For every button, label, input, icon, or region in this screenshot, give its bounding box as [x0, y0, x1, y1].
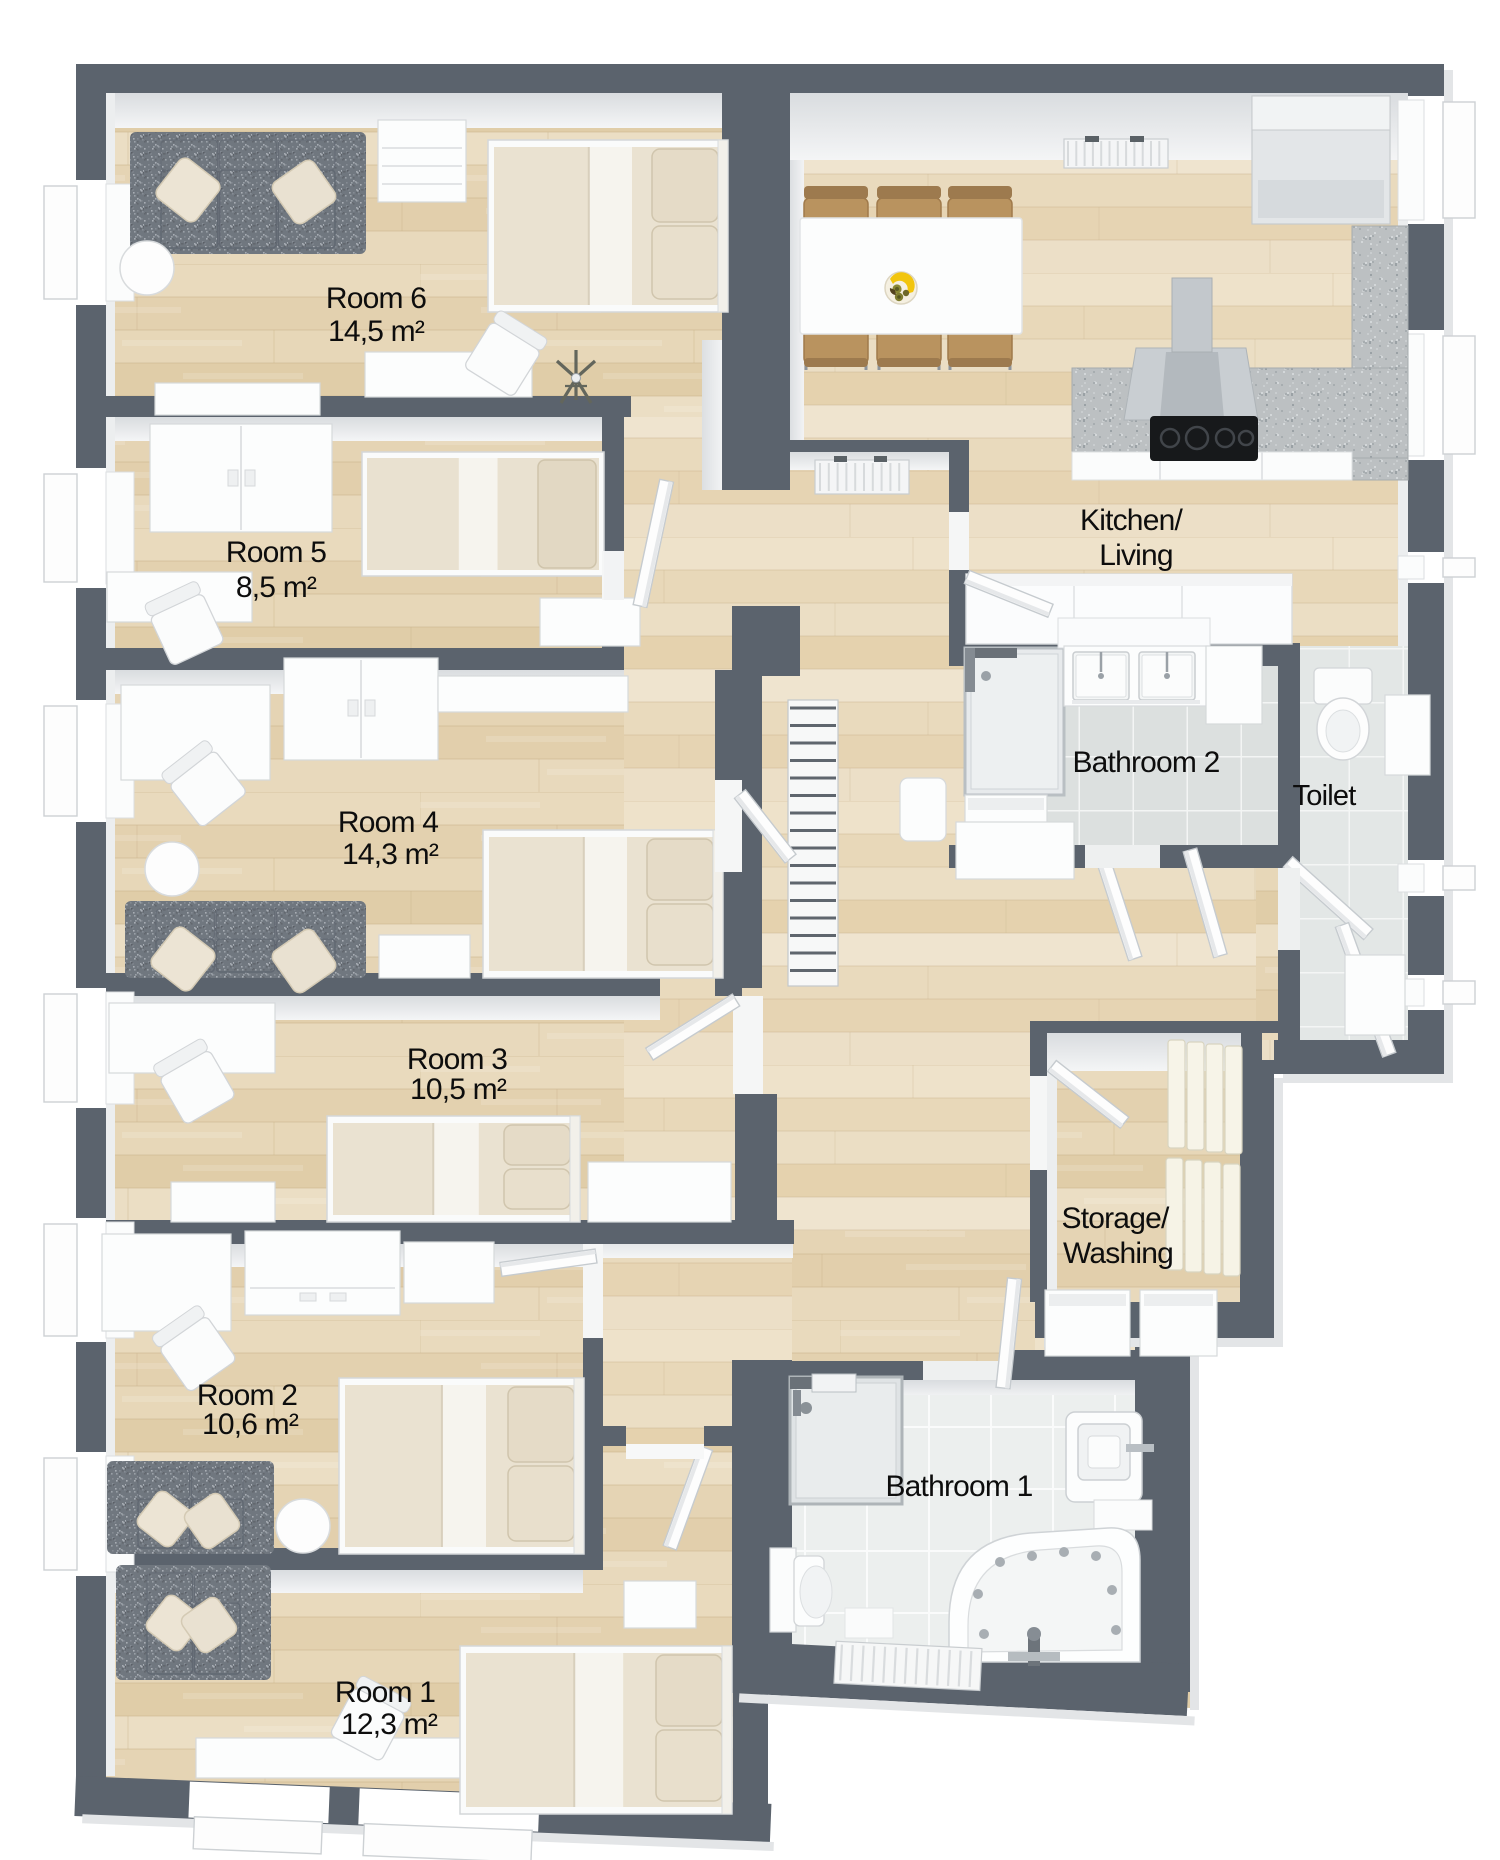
svg-text:Bathroom 2: Bathroom 2 [1072, 746, 1219, 779]
svg-text:12,3 m²: 12,3 m² [341, 1708, 438, 1741]
svg-text:Washing: Washing [1063, 1237, 1173, 1270]
svg-text:Living: Living [1099, 539, 1173, 572]
svg-text:8,5 m²: 8,5 m² [236, 571, 317, 604]
svg-text:Kitchen/: Kitchen/ [1080, 504, 1183, 537]
svg-text:10,5 m²: 10,5 m² [410, 1073, 507, 1106]
svg-text:Bathroom 1: Bathroom 1 [885, 1470, 1032, 1503]
svg-text:Room 4: Room 4 [338, 806, 438, 839]
svg-text:14,5 m²: 14,5 m² [328, 315, 425, 348]
svg-text:Room 6: Room 6 [326, 282, 426, 315]
svg-text:14,3 m²: 14,3 m² [342, 838, 439, 871]
svg-text:Room 1: Room 1 [335, 1676, 435, 1709]
svg-text:Room 5: Room 5 [226, 536, 326, 569]
svg-text:Storage/: Storage/ [1061, 1202, 1169, 1235]
svg-text:10,6 m²: 10,6 m² [202, 1408, 299, 1441]
svg-text:Room 3: Room 3 [407, 1043, 507, 1076]
svg-text:Toilet: Toilet [1293, 780, 1357, 812]
